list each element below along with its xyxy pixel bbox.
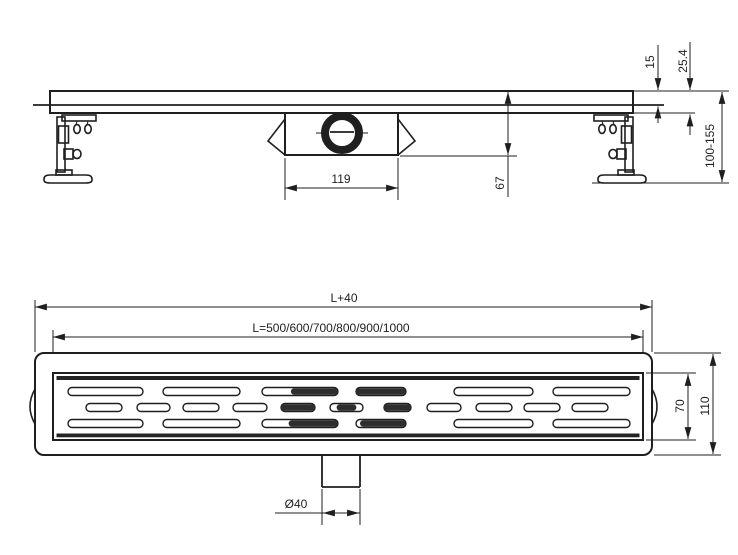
- technical-drawing-canvas: 15 25.4 100-155 67 119: [0, 0, 738, 555]
- clamp-knob-tip: [609, 150, 617, 159]
- grate-slot: [86, 404, 122, 412]
- grate-slot: [427, 404, 461, 412]
- grate-slot: [183, 404, 219, 412]
- clip-ball: [74, 125, 80, 134]
- dim-label-edge-height: 25.4: [676, 49, 690, 73]
- dim-label-channel-length: L=500/600/700/800/900/1000: [252, 321, 409, 335]
- hanger-bracket: [62, 115, 96, 121]
- side-elevation-view: 15 25.4 100-155 67 119: [33, 42, 729, 200]
- grate-slot: [137, 404, 170, 412]
- foot-base-plate: [598, 175, 646, 183]
- grate-slot: [68, 420, 143, 428]
- dim-label-grate-width: 70: [673, 399, 687, 413]
- clip-ball: [599, 125, 605, 134]
- right-adjustable-foot: [594, 115, 646, 183]
- slider-block: [59, 126, 69, 143]
- grate-slot: [553, 420, 630, 428]
- grate-slot: [553, 388, 630, 396]
- grate-slot: [163, 388, 240, 396]
- plan-view: L+40 L=500/600/700/800/900/1000: [30, 291, 721, 525]
- grate-frame-bottom-band: [57, 434, 640, 438]
- drain-trap-body: [268, 113, 415, 155]
- dim-label-outlet-diameter: Ø40: [285, 497, 308, 511]
- dim-label-grate-thickness: 15: [643, 55, 657, 69]
- clamp-knob-tip: [73, 150, 81, 159]
- grate-slot: [454, 388, 533, 396]
- grate-slot-dark-section: [356, 388, 406, 394]
- dim-label-trap-width: 119: [331, 172, 350, 186]
- clip-ball: [85, 125, 91, 134]
- grate-slot: [524, 404, 560, 412]
- dim-label-overall-width: 110: [698, 396, 712, 415]
- technical-drawing-page: 15 25.4 100-155 67 119: [0, 0, 738, 555]
- grate-slot-dark-section: [337, 404, 357, 410]
- grate-slot: [233, 404, 267, 412]
- slider-block: [622, 126, 632, 143]
- channel-body-outline: [50, 91, 633, 113]
- grate-slot: [68, 388, 143, 396]
- dim-label-adjustable-height: 100-155: [703, 124, 717, 168]
- grate-slot-dark-section: [384, 404, 411, 410]
- left-adjustable-foot: [44, 115, 96, 183]
- grate-slot: [572, 404, 608, 412]
- grate-slot: [476, 404, 512, 412]
- grate-slot-dark-section: [360, 420, 406, 426]
- grate-slot-dark-section: [281, 404, 315, 410]
- dim-adjustable-height: 100-155: [703, 92, 722, 182]
- dim-label-overall-length: L+40: [330, 291, 357, 305]
- dim-edge-height: 25.4: [676, 42, 690, 135]
- clip-ball: [610, 125, 616, 134]
- grate-slot: [454, 420, 533, 428]
- dim-label-trap-depth: 67: [493, 176, 507, 190]
- grate-slot: [163, 420, 240, 428]
- grate-frame-top-band: [57, 376, 640, 380]
- mounting-clip-left: [268, 119, 285, 155]
- grate-slot-dark-section: [291, 388, 338, 394]
- dim-grate-thickness: 15: [643, 45, 658, 123]
- mounting-clip-right: [398, 119, 415, 155]
- grate-slot-dark-section: [289, 420, 338, 426]
- dim-outlet-diameter: Ø40: [275, 489, 360, 525]
- dim-trap-width: 119: [285, 158, 398, 200]
- outlet-stub: [322, 455, 360, 487]
- hanger-bracket: [594, 115, 628, 121]
- foot-base-plate: [44, 175, 92, 183]
- dim-grate-width: 70: [646, 373, 696, 440]
